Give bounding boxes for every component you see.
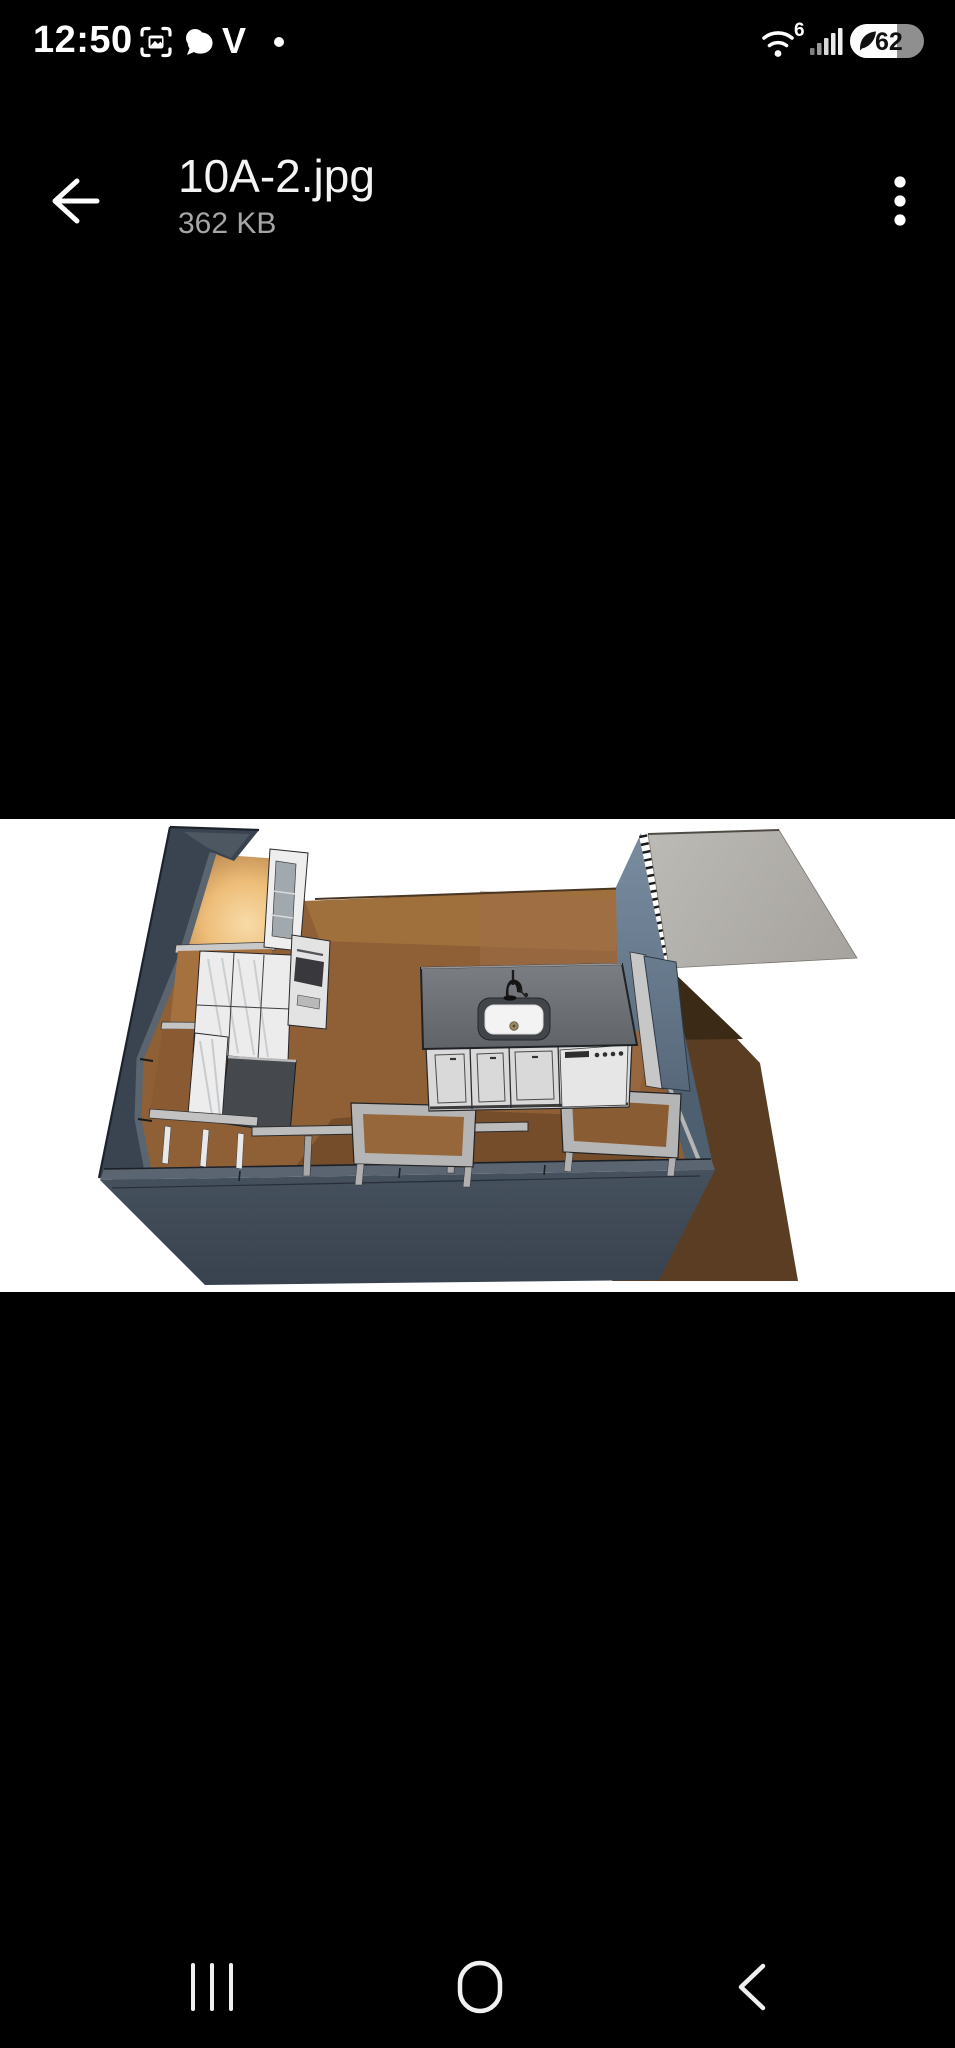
page-title: 10A-2.jpg	[178, 150, 375, 202]
kitchen-island	[421, 964, 637, 1111]
notification-dot	[274, 37, 284, 47]
image-viewer[interactable]	[0, 819, 955, 1292]
more-options-button[interactable]	[884, 170, 916, 232]
v-app-icon: V	[222, 21, 246, 61]
messages-icon	[181, 25, 217, 61]
status-bar[interactable]: 12:50 V 6	[0, 0, 955, 64]
wifi-icon: 6	[760, 20, 806, 64]
recents-button[interactable]	[188, 1962, 236, 2012]
battery-icon: 62	[849, 23, 925, 59]
screenshot-icon	[139, 25, 173, 59]
clock: 12:50	[33, 20, 133, 60]
kitchen-floorplan-render	[0, 819, 955, 1292]
file-info: 10A-2.jpg 362 KB	[178, 150, 375, 241]
back-button[interactable]	[47, 173, 103, 229]
battery-percent-label: 62	[875, 28, 903, 56]
phone-screen: { "status_bar": { "time": "12:50", "wifi…	[0, 0, 955, 2048]
front-wall	[100, 1159, 715, 1285]
wifi-generation-label: 6	[794, 20, 805, 41]
sink	[478, 998, 550, 1040]
app-bar: 10A-2.jpg 362 KB	[0, 64, 955, 204]
back-nav-button[interactable]	[733, 1962, 773, 2012]
home-button[interactable]	[452, 1960, 508, 2014]
file-size: 362 KB	[178, 207, 375, 241]
signal-icon	[810, 24, 846, 58]
